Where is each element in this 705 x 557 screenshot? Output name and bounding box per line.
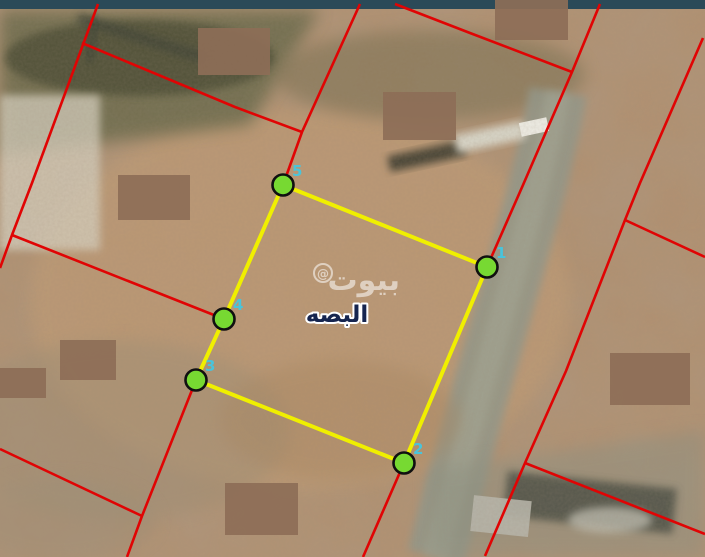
blur-patch — [495, 0, 568, 40]
blur-patch — [118, 175, 190, 220]
place-label-text: البصه — [306, 302, 369, 328]
vertex-marker — [273, 175, 294, 196]
watermark: @ بيوت — [314, 263, 400, 298]
vertex-marker — [214, 309, 235, 330]
blur-patch — [225, 483, 298, 535]
vertex-number: 4 — [233, 296, 243, 314]
map-image: 51234 @ بيوت البصه — [0, 0, 705, 557]
watermark-text: بيوت — [328, 263, 400, 298]
place-label: البصه — [306, 302, 369, 328]
vertex-marker — [394, 453, 415, 474]
vertex-marker — [477, 257, 498, 278]
blur-patch — [0, 368, 46, 398]
vertex-marker — [186, 370, 207, 391]
vertex-number: 5 — [292, 162, 302, 180]
blur-patch — [610, 353, 690, 405]
vertex-number: 3 — [205, 357, 215, 375]
vertex-number: 1 — [496, 244, 506, 262]
blur-patch — [60, 340, 116, 380]
satellite-map-canvas[interactable]: 51234 @ بيوت البصه — [0, 0, 705, 557]
blur-patch — [198, 28, 270, 75]
vertex-number: 2 — [413, 440, 423, 458]
blur-patch — [383, 92, 456, 140]
